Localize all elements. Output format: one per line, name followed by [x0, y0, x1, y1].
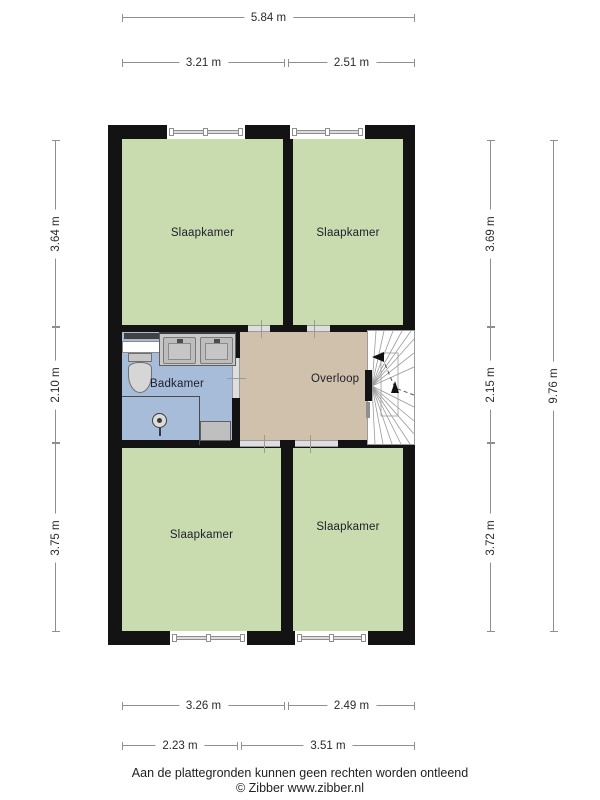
dim-bottom-row2-left: 2.23 m: [122, 745, 238, 746]
label-bedroom-top-right: Slaapkamer: [293, 227, 403, 239]
room-bedroom-bottom-right: [293, 448, 403, 631]
dim-label: 3.64 m: [50, 209, 62, 258]
floorplan-canvas: 5.84 m 3.21 m 2.51 m 3.64 m 2.10 m 3.75 …: [0, 0, 600, 800]
dim-label: 2.51 m: [327, 57, 376, 69]
dim-left-top: 3.64 m: [55, 140, 56, 327]
disclaimer-text: Aan de plattegronden kunnen geen rechten…: [0, 766, 600, 780]
room-landing: [240, 332, 367, 440]
dim-label: 3.51 m: [303, 740, 352, 752]
dim-bottom-row1-left: 3.26 m: [122, 705, 285, 706]
dim-label: 2.49 m: [327, 700, 376, 712]
dim-label: 9.76 m: [548, 361, 560, 410]
radiator-icon: [124, 333, 162, 339]
dim-label: 3.72 m: [485, 513, 497, 562]
door-opening-bedroom-top-right: [307, 325, 330, 332]
dim-bottom-row1-right: 2.49 m: [288, 705, 415, 706]
dim-label: 3.69 m: [485, 209, 497, 258]
dim-label: 2.10 m: [50, 360, 62, 409]
dim-top-right: 2.51 m: [288, 62, 415, 63]
dim-label: 2.23 m: [155, 740, 204, 752]
dim-right-middle: 2.15 m: [490, 327, 491, 443]
dim-label: 2.15 m: [485, 360, 497, 409]
sink-icon: [163, 337, 196, 364]
staircase-treads: [368, 331, 414, 444]
dim-label: 5.84 m: [244, 12, 293, 24]
dim-top-left: 3.21 m: [122, 62, 285, 63]
staircase: [367, 330, 415, 445]
dim-bottom-row2-right: 3.51 m: [241, 745, 415, 746]
window: [295, 631, 368, 645]
label-landing: Overloop: [311, 373, 359, 385]
toilet-icon: [128, 353, 152, 362]
dim-label: 3.21 m: [179, 57, 228, 69]
stair-handrail: [366, 402, 370, 418]
shower-head-icon: [152, 413, 167, 428]
dim-label: 3.26 m: [179, 700, 228, 712]
dim-label: 3.75 m: [50, 513, 62, 562]
dim-left-bottom: 3.75 m: [55, 443, 56, 632]
label-bedroom-bottom-left: Slaapkamer: [122, 529, 281, 541]
door-opening-bedroom-bottom-left: [240, 440, 280, 447]
shower-stem: [159, 428, 161, 436]
shower-tray: [200, 421, 231, 441]
window: [167, 125, 245, 139]
dim-right-total: 9.76 m: [553, 140, 554, 632]
label-bedroom-bottom-right: Slaapkamer: [293, 521, 403, 533]
label-bathroom: Badkamer: [122, 378, 232, 390]
window: [290, 125, 365, 139]
dim-left-middle: 2.10 m: [55, 327, 56, 443]
sink-icon: [200, 337, 233, 364]
dim-top-total: 5.84 m: [122, 17, 415, 18]
door-opening-bedroom-bottom-right: [295, 440, 338, 447]
vanity-double-sink: [159, 332, 236, 366]
floorplan: Slaapkamer Slaapkamer Badkamer Overloop …: [108, 125, 415, 645]
window: [170, 631, 247, 645]
dim-right-top: 3.69 m: [490, 140, 491, 327]
stair-wall-stub: [365, 370, 372, 401]
label-bedroom-top-left: Slaapkamer: [122, 227, 283, 239]
credit-text: © Zibber www.zibber.nl: [0, 781, 600, 795]
dim-right-bottom: 3.72 m: [490, 443, 491, 632]
door-opening-bedroom-top-left: [248, 325, 270, 332]
